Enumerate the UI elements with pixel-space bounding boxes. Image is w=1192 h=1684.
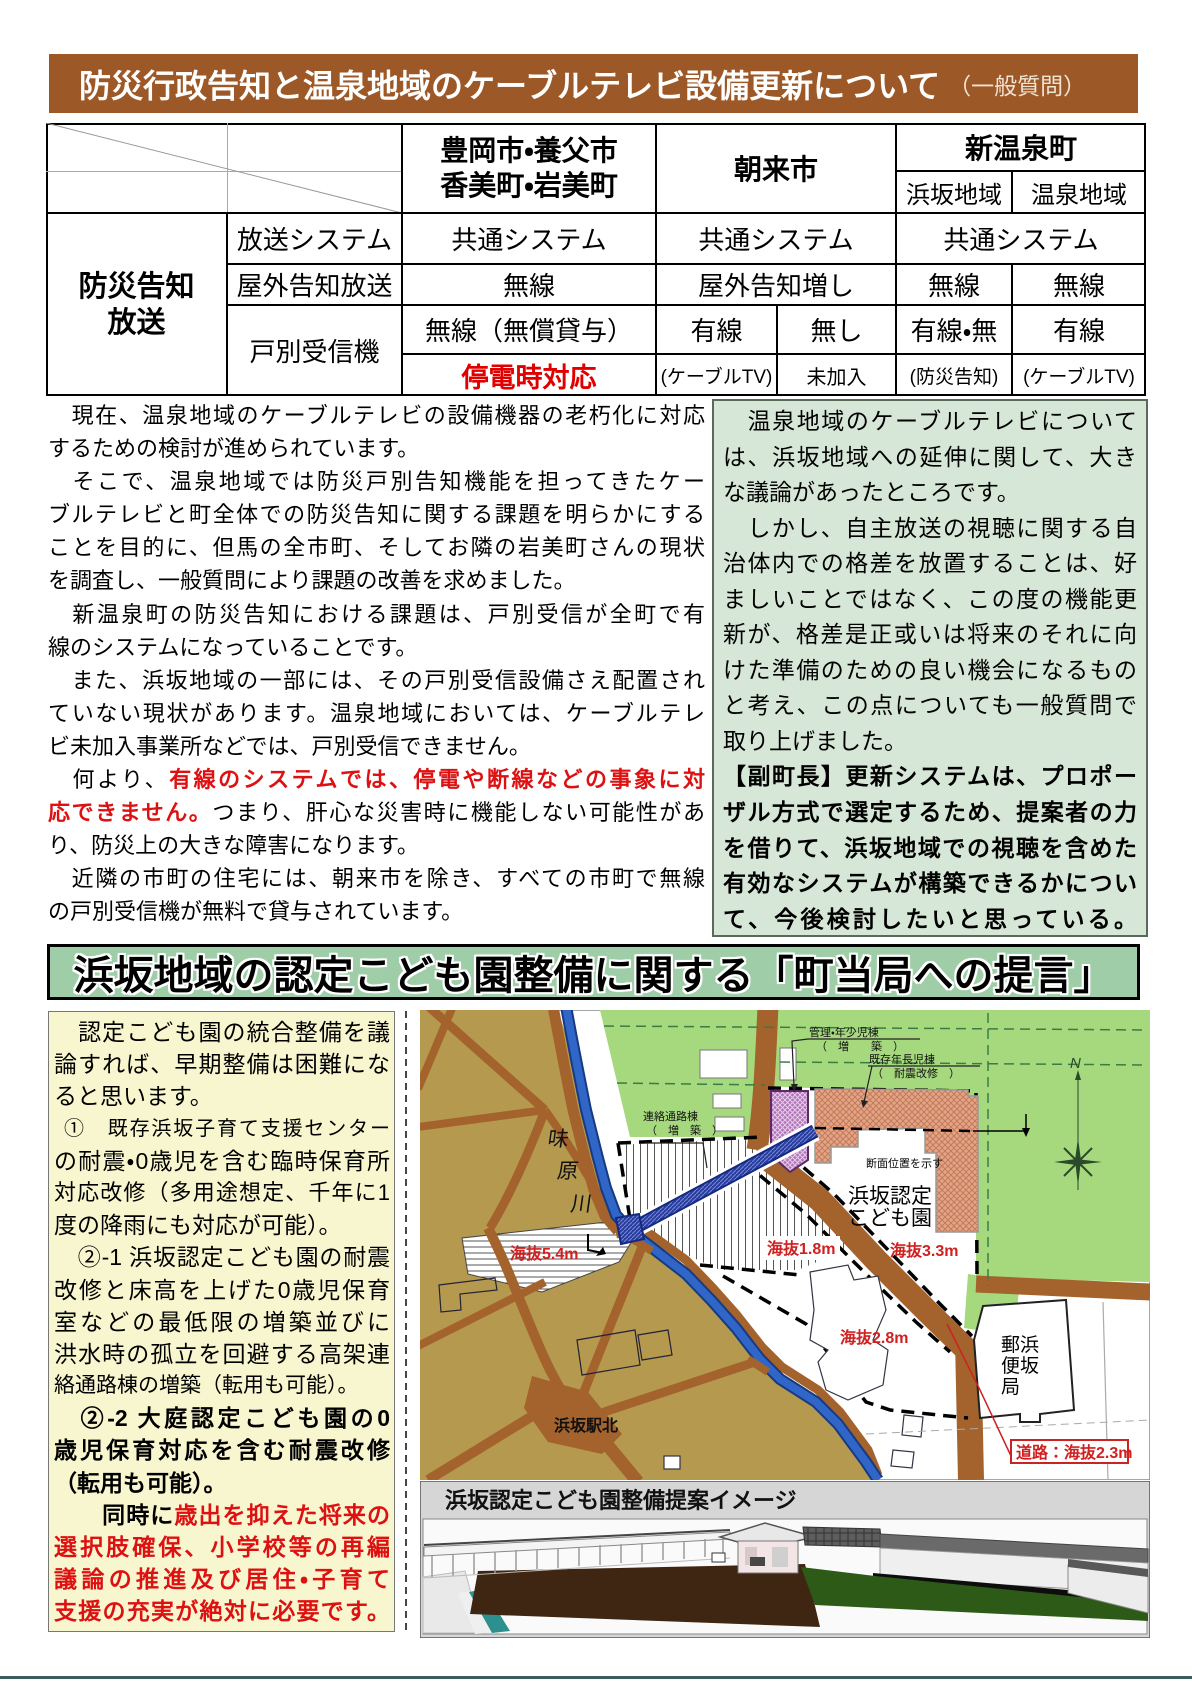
svg-text:浜坂認定こども園整備提案イメージ: 浜坂認定こども園整備提案イメージ bbox=[445, 1488, 797, 1513]
svg-text:便: 便 bbox=[1001, 1355, 1020, 1377]
svg-text:海抜1.8m: 海抜1.8m bbox=[767, 1239, 835, 1258]
svg-text:（ 増 築 ）: （ 増 築 ） bbox=[816, 1039, 904, 1053]
svg-text:局: 局 bbox=[1001, 1377, 1020, 1398]
svg-text:（ 増 築 ）: （ 増 築 ） bbox=[646, 1123, 723, 1137]
svg-text:道路：海抜2.3m: 道路：海抜2.3m bbox=[1016, 1443, 1132, 1462]
svg-text:坂: 坂 bbox=[1020, 1355, 1039, 1377]
svg-text:こども園: こども園 bbox=[848, 1207, 932, 1230]
svg-text:郵: 郵 bbox=[1001, 1334, 1020, 1356]
svg-text:既存年長児棟: 既存年長児棟 bbox=[869, 1052, 935, 1066]
svg-text:海抜2.8m: 海抜2.8m bbox=[840, 1328, 908, 1347]
svg-text:味: 味 bbox=[546, 1127, 570, 1151]
svg-text:浜: 浜 bbox=[1020, 1334, 1039, 1356]
svg-text:浜坂認定: 浜坂認定 bbox=[848, 1185, 932, 1208]
svg-text:海抜3.3m: 海抜3.3m bbox=[890, 1241, 958, 1260]
svg-text:連絡通路棟: 連絡通路棟 bbox=[643, 1109, 698, 1123]
svg-text:浜坂駅北: 浜坂駅北 bbox=[554, 1416, 618, 1435]
svg-text:断面位置を示す: 断面位置を示す bbox=[866, 1157, 943, 1170]
svg-text:原: 原 bbox=[556, 1160, 580, 1183]
svg-text:川: 川 bbox=[569, 1193, 593, 1216]
svg-text:管理・年少児棟: 管理・年少児棟 bbox=[809, 1025, 879, 1039]
svg-text:（ 耐震改修 ）: （ 耐震改修 ） bbox=[872, 1066, 960, 1080]
svg-text:N: N bbox=[1070, 1055, 1081, 1072]
svg-text:海抜5.4m: 海抜5.4m bbox=[510, 1244, 578, 1263]
